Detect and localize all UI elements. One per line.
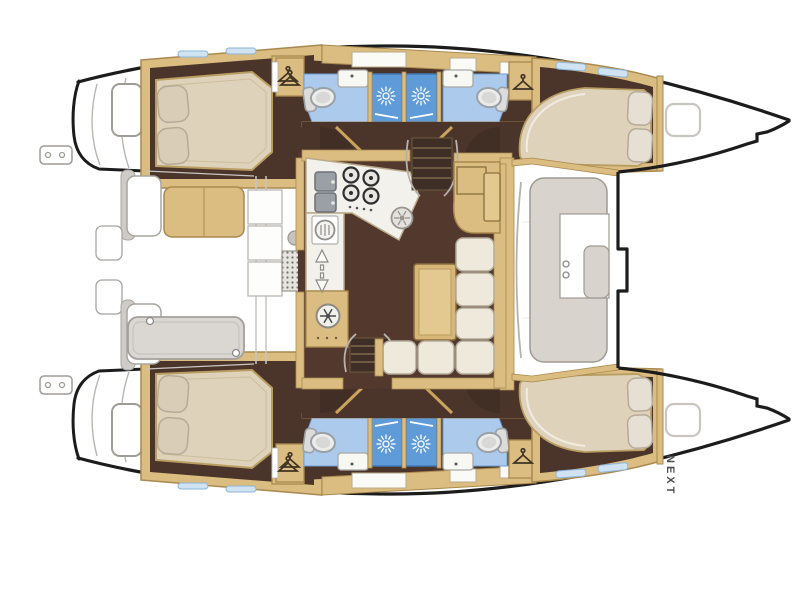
drain-plate-icon <box>392 208 413 229</box>
nav-station <box>454 162 500 233</box>
salon-wall <box>302 378 343 389</box>
mast-bulkhead <box>618 172 627 368</box>
sofa-cushion <box>456 308 494 339</box>
sofa-cushion <box>383 341 416 374</box>
salon-table-top <box>419 269 451 335</box>
cockpit-seat <box>96 280 122 314</box>
instrument-panel <box>484 173 500 221</box>
sliding-door-panel <box>248 226 282 260</box>
cockpit-table <box>128 317 244 359</box>
helm-seat <box>127 176 161 236</box>
fridge-snowflake-icon <box>317 305 340 328</box>
sofa-cushion <box>456 341 494 374</box>
drain-hole <box>563 272 569 278</box>
sofa-cushion <box>456 238 494 271</box>
drain-hole <box>563 261 569 267</box>
lashing-ring <box>147 318 154 325</box>
aft-cockpit <box>96 170 312 370</box>
floorplan-canvas: NEXT <box>0 0 800 599</box>
salon <box>296 138 514 390</box>
next-button[interactable]: NEXT <box>664 455 676 496</box>
forward-seat-step <box>584 246 609 298</box>
forward-cockpit <box>512 158 627 382</box>
salon-aft-wall <box>296 158 304 250</box>
sofa-armrest <box>375 339 383 376</box>
sofa-cushion <box>418 341 454 374</box>
sliding-door-panel <box>248 262 282 296</box>
deck-seam <box>517 182 522 358</box>
cockpit-seat <box>96 226 122 260</box>
lashing-ring <box>233 350 240 357</box>
sliding-door-panel <box>248 190 282 224</box>
catamaran-floorplan <box>0 0 800 599</box>
salon-aft-wall <box>296 292 304 388</box>
sofa-cushion <box>456 273 494 306</box>
stairs-port <box>407 138 458 196</box>
